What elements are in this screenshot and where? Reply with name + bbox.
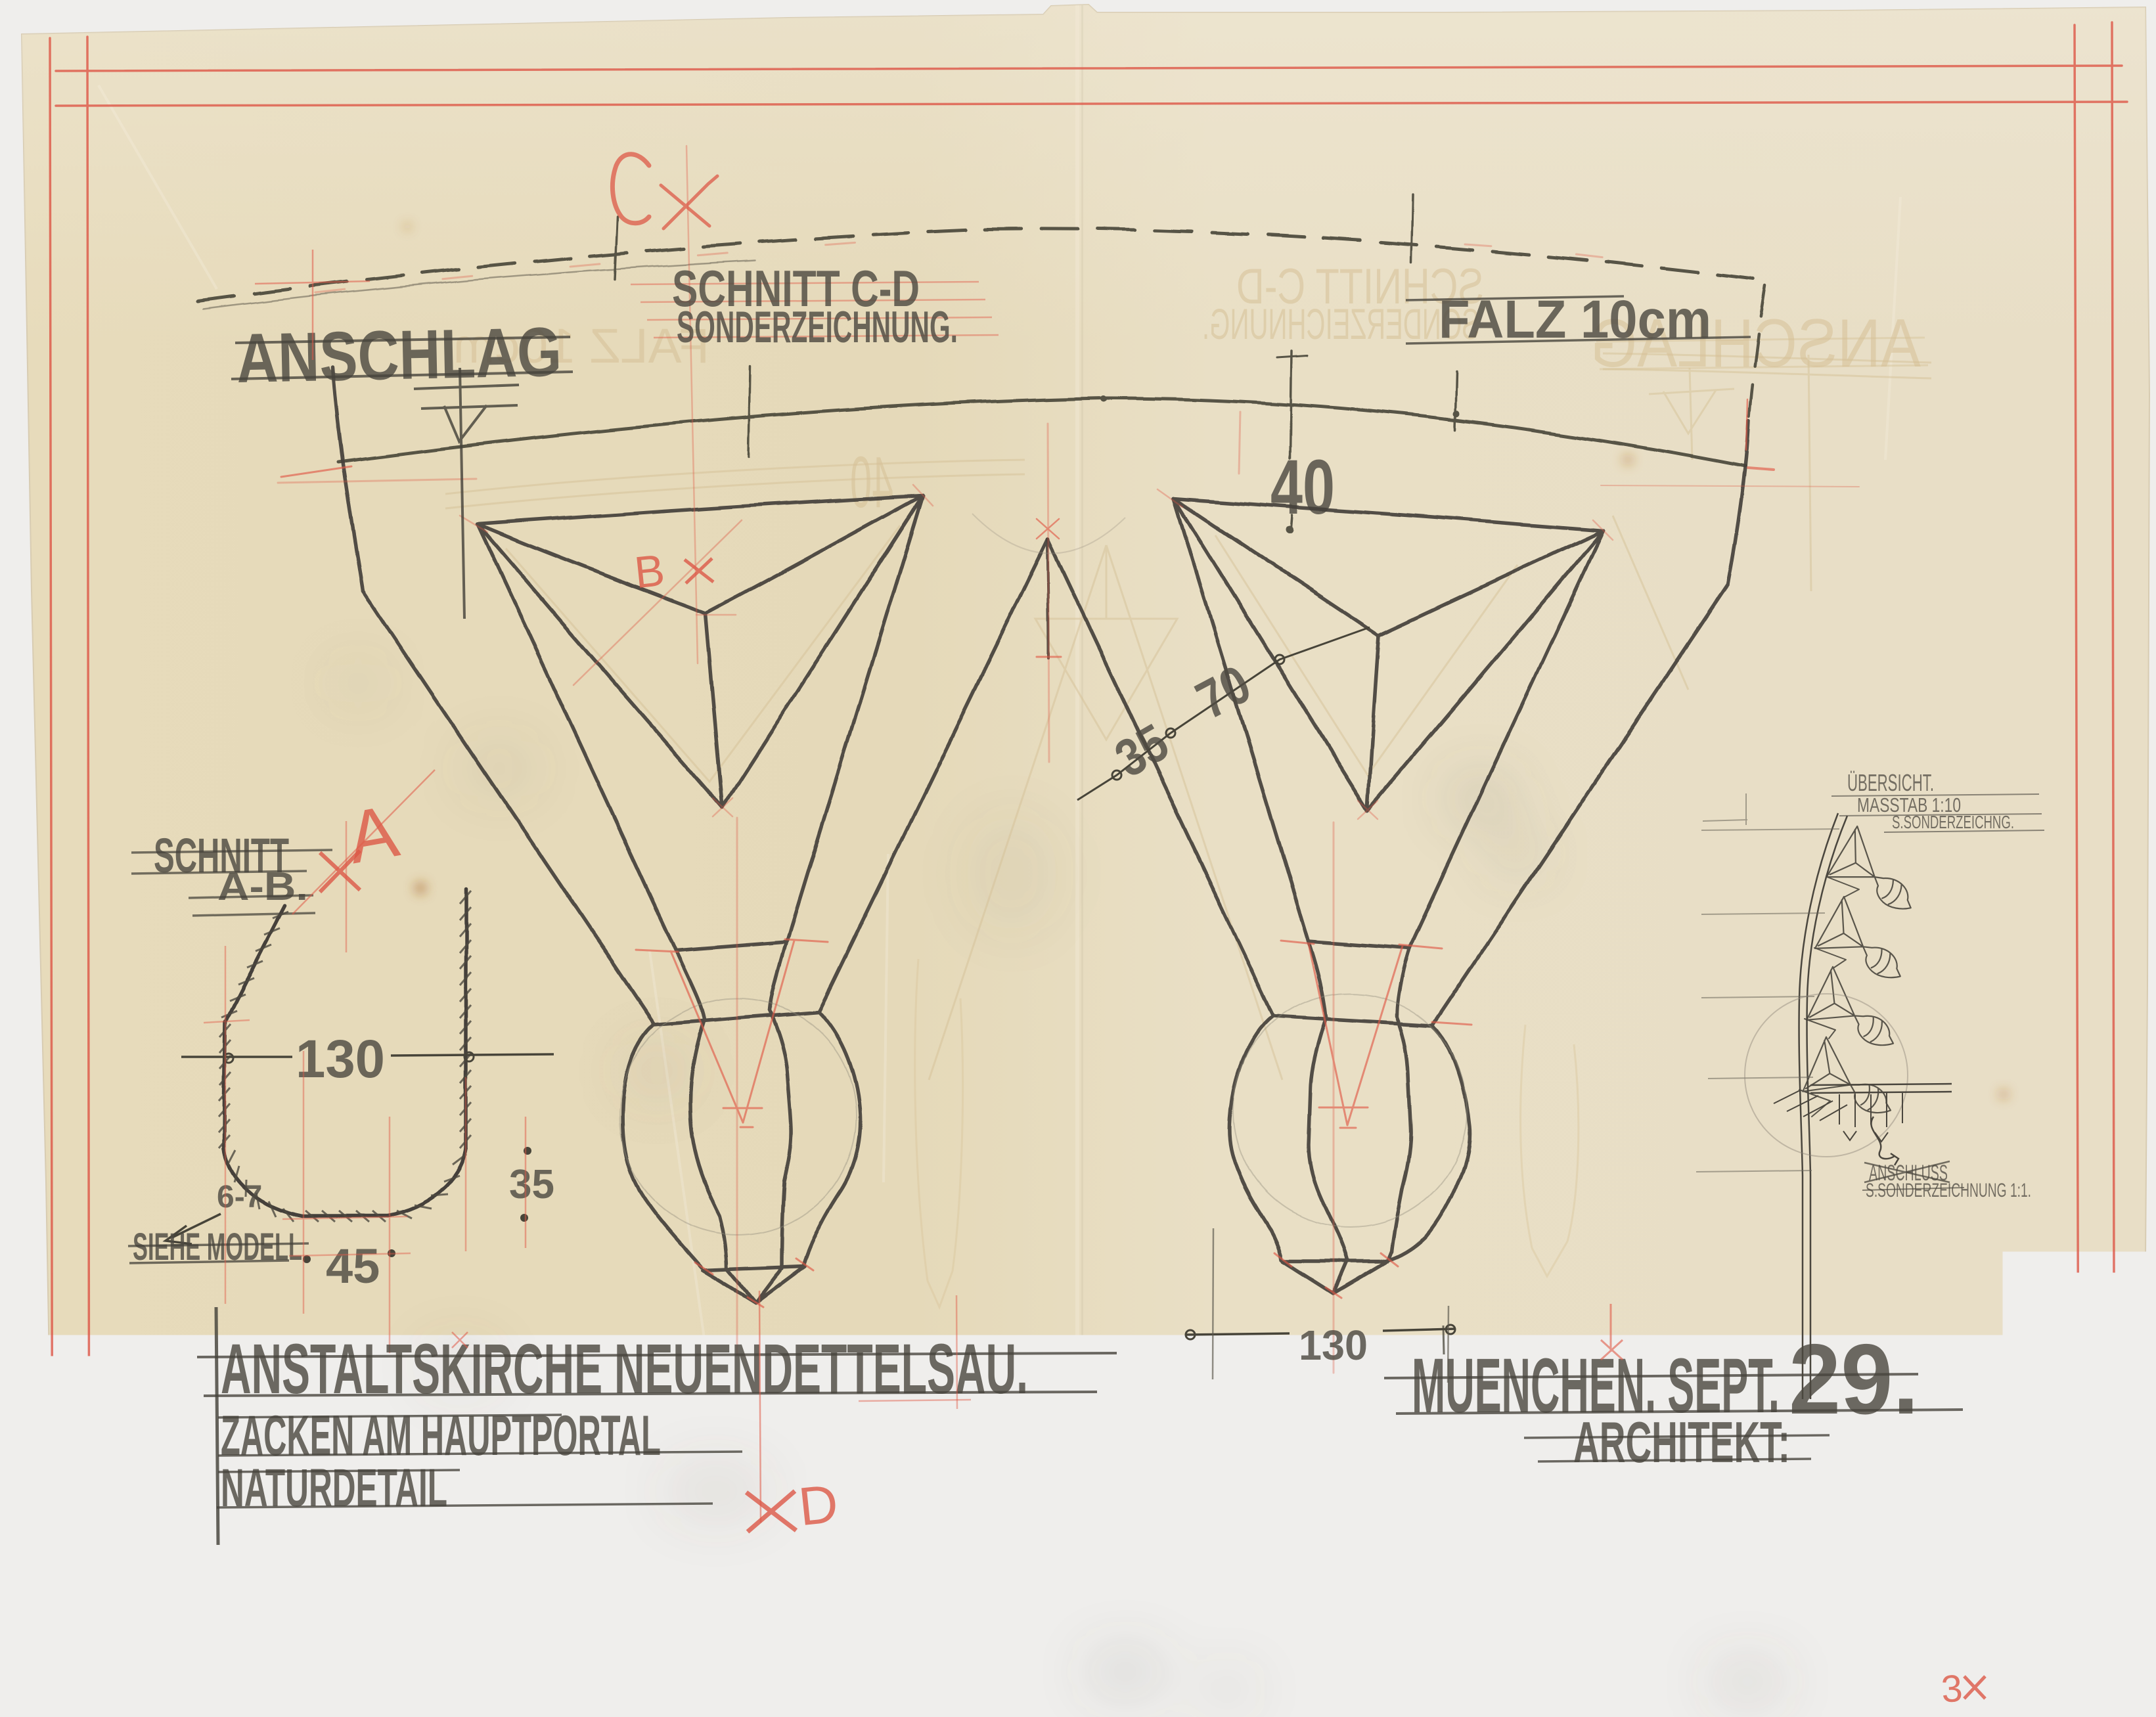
svg-text:ÜBERSICHT.: ÜBERSICHT. [1847,769,1934,796]
svg-text:S.SONDERZEICHNUNG 1:1.: S.SONDERZEICHNUNG 1:1. [1866,1180,2031,1201]
svg-text:130: 130 [296,1029,385,1089]
svg-text:3: 3 [1940,1667,1964,1711]
svg-text:40: 40 [1270,444,1335,531]
svg-text:STÄDT. GALERIE: STÄDT. GALERIE [103,1580,149,1586]
svg-text:SONDERZEICHNUNG.: SONDERZEICHNUNG. [677,302,958,352]
svg-text:29.: 29. [1789,1324,1919,1435]
svg-text:B: B [632,545,667,598]
svg-text:MÜNCHEN: MÜNCHEN [109,1586,137,1593]
svg-text:SONDERZEICHNUNG.: SONDERZEICHNUNG. [1202,300,1479,348]
svg-text:45: 45 [326,1239,380,1293]
svg-text:D: D [796,1474,841,1538]
svg-text:00257: 00257 [105,1555,161,1576]
svg-text:09: 09 [79,1599,108,1628]
svg-text:40: 40 [850,442,893,523]
svg-text:6-7: 6-7 [217,1180,262,1215]
svg-text:ARCHITEKT:: ARCHITEKT: [1573,1410,1790,1475]
svg-text:NATURDETAIL: NATURDETAIL [221,1458,447,1518]
svg-text:130: 130 [1299,1322,1368,1369]
svg-text:35: 35 [509,1162,554,1207]
